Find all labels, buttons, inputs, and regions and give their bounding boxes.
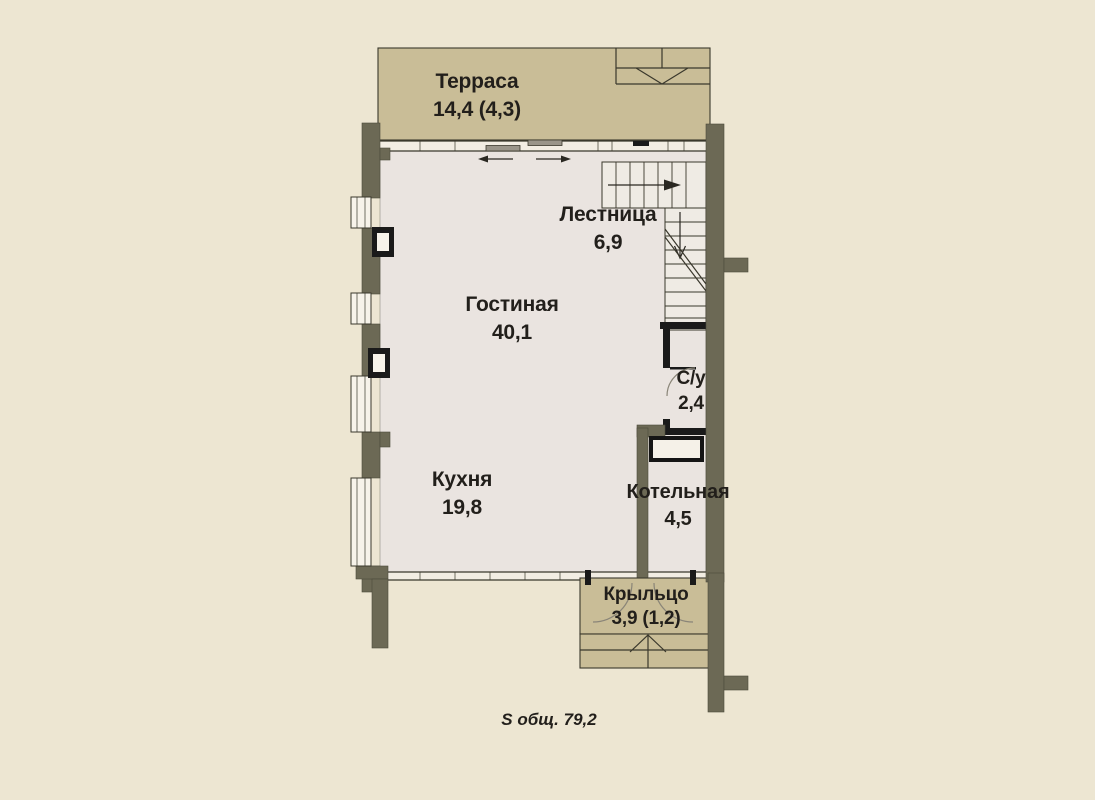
room-area: 19,8 [412,494,512,522]
room-area: 2,4 [666,391,716,416]
room-name: С/у [666,366,716,391]
window [351,197,371,228]
room-name: Гостиная [452,291,572,319]
room-name: Кухня [412,466,512,494]
room-name: Котельная [618,479,738,506]
window [351,376,371,432]
window [351,293,371,324]
room-label-living: Гостиная 40,1 [452,291,572,347]
floor-plan-canvas: Терраса 14,4 (4,3) Лестница 6,9 Гостиная… [0,0,1095,800]
flue-pier [368,348,390,378]
room-label-porch: Крыльцо 3,9 (1,2) [587,583,705,632]
window [351,478,371,566]
room-name: Крыльцо [587,583,705,607]
total-area-label: S общ. 79,2 [488,710,610,730]
room-area: 6,9 [548,229,668,257]
room-area: 40,1 [452,319,572,347]
porch-steps [580,634,710,668]
room-area: 4,5 [618,506,738,533]
lintel [633,141,649,146]
right-wall [706,124,748,712]
room-area: 3,9 (1,2) [587,607,705,631]
room-name: Терраса [397,68,557,96]
flue-pier [372,227,394,257]
boiler-unit [651,438,702,460]
room-label-stairs: Лестница 6,9 [548,201,668,257]
room-label-terrace: Терраса 14,4 (4,3) [397,68,557,124]
room-area: 14,4 (4,3) [397,96,557,124]
room-label-kitchen: Кухня 19,8 [412,466,512,522]
room-label-bathroom: С/у 2,4 [666,366,716,417]
room-name: Лестница [548,201,668,229]
room-label-boiler: Котельная 4,5 [618,479,738,532]
